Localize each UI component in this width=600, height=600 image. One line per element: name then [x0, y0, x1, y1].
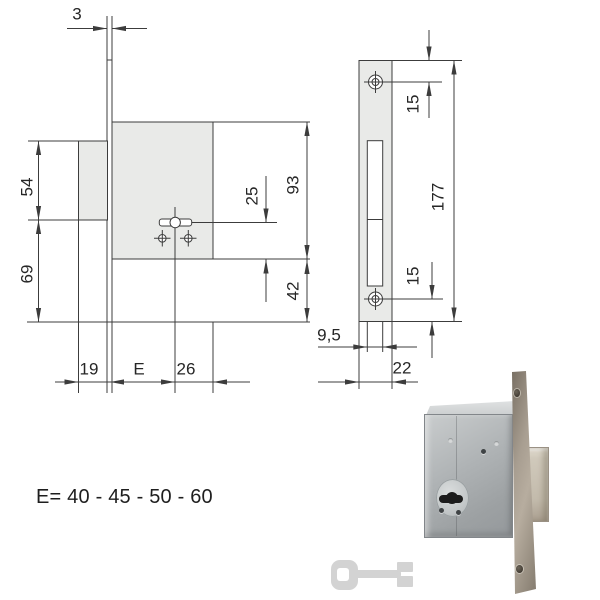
dim-plate-height: 177 [429, 183, 448, 211]
side-rim-box [79, 141, 108, 220]
dim-plate-width: 22 [393, 359, 412, 378]
key-bow-hole [337, 568, 349, 581]
front-view: 15 177 15 9,5 22 [317, 30, 462, 389]
dim-box-depth: 19 [80, 360, 99, 379]
dim-backset: E [133, 360, 144, 379]
dim-hole-to-plate-bottom: 15 [404, 267, 423, 286]
rivet-dimple [494, 441, 499, 446]
rivet-dimple [448, 438, 453, 443]
faceplate-screw-bottom [516, 565, 523, 573]
side-keyhole-circle [170, 217, 180, 227]
keyhole-slot-circle [446, 492, 458, 504]
side-view: 3 54 69 25 93 42 19 E 26 [18, 5, 311, 394]
key-bit-upper [397, 562, 413, 572]
dim-case-bottom-to-plate-bottom: 42 [284, 282, 303, 301]
dim-top-to-axis: 54 [18, 178, 37, 197]
lock-body [424, 414, 513, 538]
rivet [481, 449, 486, 454]
rivet [456, 510, 461, 515]
dim-slot-width: 9,5 [317, 326, 341, 345]
dim-axis-to-plate-bottom: 69 [18, 265, 37, 284]
key-bit-lower [397, 576, 413, 587]
faceplate-screw-top [514, 389, 520, 397]
front-bolt-slot [367, 141, 382, 286]
dim-axis-to-case-back: 26 [177, 360, 196, 379]
key-shaft [356, 570, 401, 578]
dim-case-height: 93 [284, 176, 303, 195]
dim-plate-top-to-hole: 15 [404, 95, 423, 114]
lock-body-seam [456, 416, 457, 536]
rivet [439, 508, 444, 513]
dim-faceplate-thickness: 3 [72, 5, 81, 24]
backset-caption: E= 40 - 45 - 50 - 60 [36, 486, 213, 509]
technical-sheet: 3 54 69 25 93 42 19 E 26 [0, 0, 600, 600]
dim-axis-to-case-bottom: 25 [243, 187, 262, 206]
